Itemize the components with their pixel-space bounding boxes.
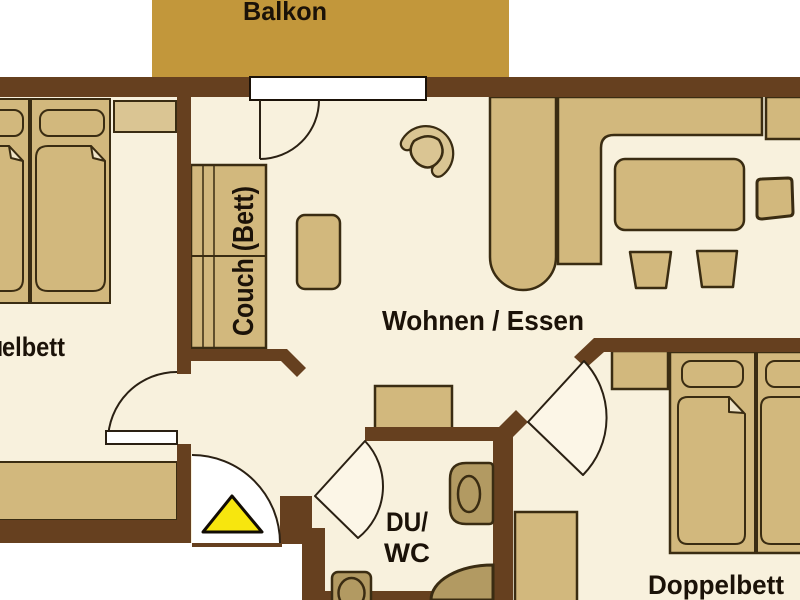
svg-text:Wohnen / Essen: Wohnen / Essen bbox=[382, 305, 584, 336]
svg-text:WC: WC bbox=[384, 538, 430, 568]
svg-text:Doppelbett: Doppelbett bbox=[648, 570, 784, 600]
svg-text:Couch (Bett): Couch (Bett) bbox=[228, 186, 260, 336]
svg-text:Balkon: Balkon bbox=[243, 0, 327, 26]
svg-text:DU/: DU/ bbox=[386, 507, 428, 537]
svg-text:elbett: elbett bbox=[2, 332, 65, 362]
